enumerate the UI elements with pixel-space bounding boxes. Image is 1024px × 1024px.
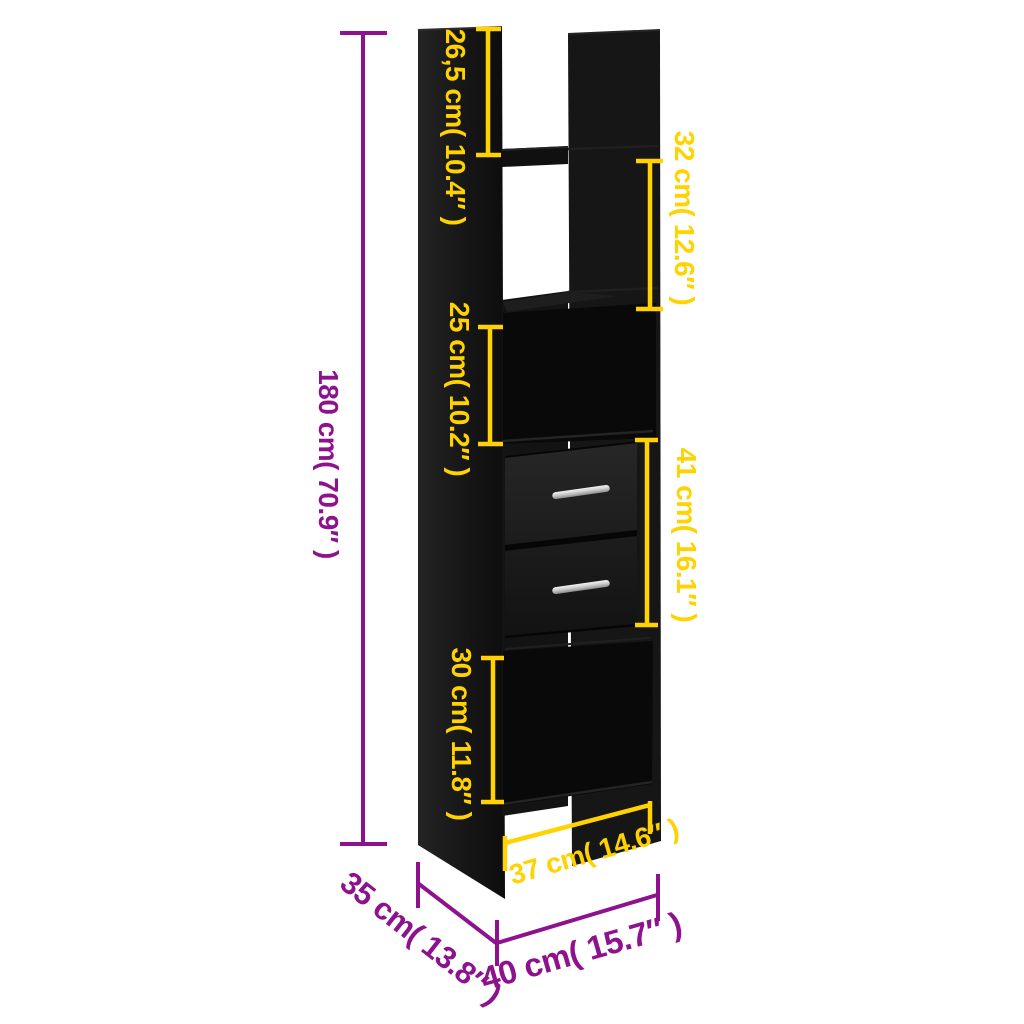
dim-label-top-opening: 26,5 cm( 10.4″ ) xyxy=(441,29,469,226)
lower-open-compartment xyxy=(503,641,653,806)
dim-label-total-height: 180 cm( 70.9″ ) xyxy=(314,369,342,559)
dim-label-drawer-section: 41 cm( 16.1″ ) xyxy=(672,448,700,623)
dim-label-middle-opening: 25 cm( 10.2″ ) xyxy=(445,302,473,477)
upper-open-compartment xyxy=(503,303,656,444)
product-dimension-diagram: 180 cm( 70.9″ ) 26,5 cm( 10.4″ ) 32 cm( … xyxy=(0,0,1024,1024)
dim-label-upper-section: 32 cm( 12.6″ ) xyxy=(670,131,698,306)
dim-label-lower-opening: 30 cm( 11.8″ ) xyxy=(447,648,475,821)
dimension-line-total-height xyxy=(340,33,387,844)
